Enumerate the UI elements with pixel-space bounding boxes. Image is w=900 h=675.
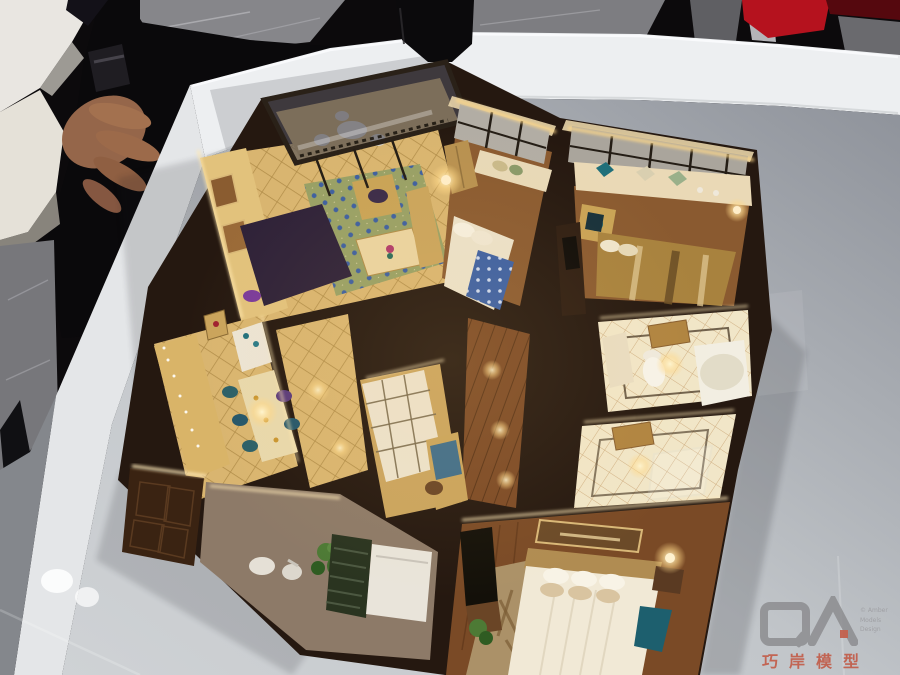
mirror-sparkle	[173, 375, 176, 378]
scene-svg	[0, 0, 900, 675]
bay-dish	[697, 187, 703, 193]
mirror-sparkle	[163, 347, 166, 350]
watermark-brand-text: 巧岸模型	[762, 648, 870, 672]
mirror-sparkle	[167, 359, 170, 362]
mirror-sparkle	[179, 395, 182, 398]
scene-shapes	[0, 0, 900, 675]
mirror-sparkle	[191, 429, 194, 432]
potted-plant	[479, 631, 493, 645]
photo-scene: 巧岸模型 © Amber Models Design	[0, 0, 900, 675]
terrace-chair	[282, 564, 302, 580]
lamp-bulb	[733, 206, 741, 214]
terrace-table	[249, 557, 275, 575]
mirror-sparkle	[185, 411, 188, 414]
light-reflection	[75, 587, 99, 607]
watermark-subtext: © Amber Models Design	[860, 606, 900, 635]
bay-dish	[713, 190, 719, 196]
wall-art	[210, 174, 238, 208]
light-reflection	[41, 569, 73, 593]
logo-accent-dot	[840, 630, 848, 638]
watermark: 巧岸模型 © Amber Models Design	[748, 594, 900, 675]
logo-a-icon	[808, 596, 858, 646]
lamp-bulb	[665, 553, 675, 563]
mirror-sparkle	[197, 445, 200, 448]
warm-ambient-glow	[182, 120, 722, 600]
